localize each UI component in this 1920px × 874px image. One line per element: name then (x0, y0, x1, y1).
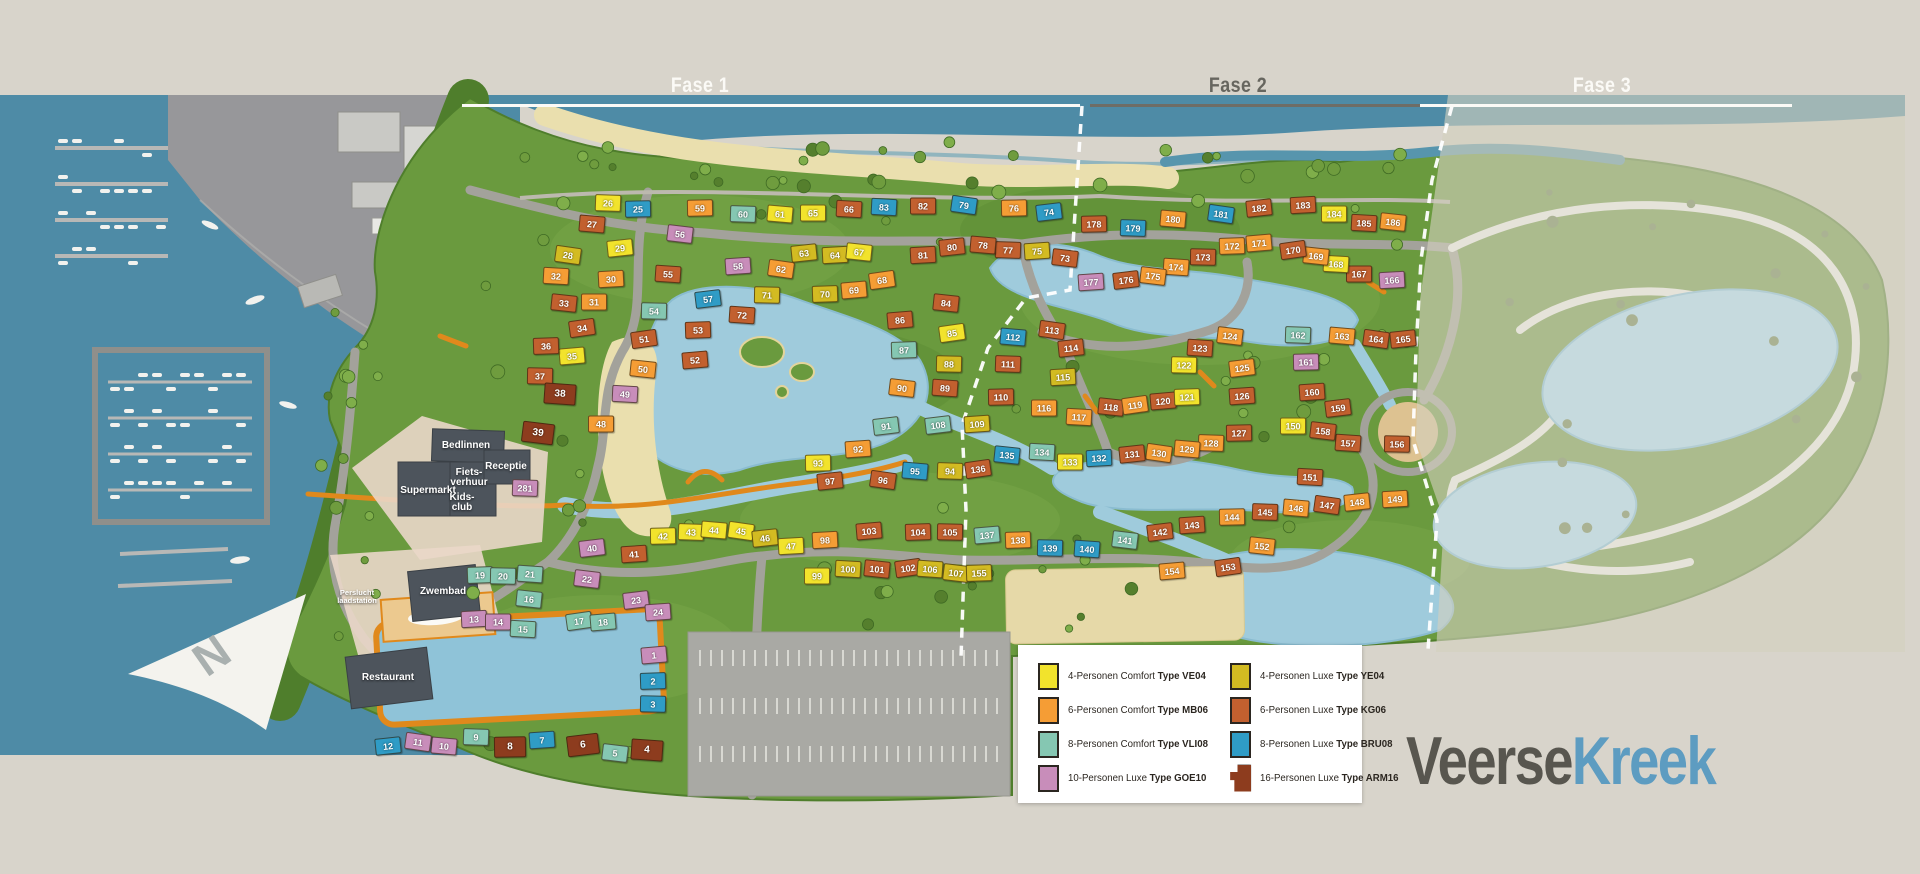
lot-marker-15: 15 (510, 620, 537, 638)
lot-marker-77: 77 (995, 241, 1022, 259)
lot-marker-134: 134 (1029, 443, 1056, 461)
lot-marker-54: 54 (641, 302, 667, 319)
lot-marker-46: 46 (751, 528, 779, 548)
lot-marker-11: 11 (404, 732, 432, 752)
lot-marker-89: 89 (931, 379, 958, 398)
lot-marker-33: 33 (550, 293, 578, 313)
lot-marker-78: 78 (969, 235, 996, 254)
lot-marker-172: 172 (1219, 237, 1246, 255)
lot-marker-162: 162 (1285, 326, 1312, 344)
lot-marker-70: 70 (812, 285, 839, 303)
lot-marker-60: 60 (730, 205, 757, 223)
lot-marker-56: 56 (666, 224, 694, 244)
lot-marker-65: 65 (800, 205, 826, 222)
lot-marker-50: 50 (629, 359, 657, 379)
lot-marker-95: 95 (901, 461, 928, 480)
lot-marker-79: 79 (950, 195, 978, 215)
lot-marker-94: 94 (937, 462, 964, 480)
lot-marker-64: 64 (822, 246, 849, 264)
lot-marker-153: 153 (1214, 557, 1242, 577)
lot-marker-123: 123 (1186, 339, 1213, 358)
lot-marker-176: 176 (1112, 270, 1140, 290)
lot-marker-149: 149 (1382, 490, 1409, 508)
lot-marker-58: 58 (724, 257, 751, 276)
lot-marker-73: 73 (1051, 248, 1079, 268)
lot-marker-30: 30 (598, 270, 625, 288)
legend-item-GOE10: 10-Personen Luxe Type GOE10 (1038, 763, 1220, 793)
lot-marker-103: 103 (855, 521, 882, 540)
lot-marker-40: 40 (578, 538, 606, 558)
lot-marker-175: 175 (1139, 266, 1167, 286)
legend-item-VE04: 4-Personen Comfort Type VE04 (1038, 661, 1220, 691)
park-map-page: N Fase 1 Fase 2 Fase 3 BedlinnenFiets- v… (0, 0, 1920, 874)
lot-marker-7: 7 (528, 731, 555, 750)
lot-marker-26: 26 (595, 194, 622, 212)
lot-marker-3: 3 (640, 695, 666, 712)
lot-marker-180: 180 (1159, 209, 1186, 228)
lot-marker-184: 184 (1321, 206, 1347, 223)
lot-marker-67: 67 (845, 242, 873, 262)
lot-marker-80: 80 (938, 237, 966, 257)
lot-marker-163: 163 (1328, 326, 1355, 345)
lot-marker-136: 136 (964, 459, 992, 479)
lot-marker-164: 164 (1362, 329, 1390, 349)
lot-marker-47: 47 (778, 537, 805, 555)
lot-marker-88: 88 (936, 355, 962, 372)
lot-marker-31: 31 (581, 294, 607, 311)
lot-marker-133: 133 (1057, 454, 1083, 471)
lot-marker-182: 182 (1245, 198, 1273, 218)
lot-marker-178: 178 (1081, 215, 1107, 232)
lot-marker-96: 96 (869, 470, 897, 490)
lot-marker-69: 69 (840, 280, 867, 299)
lot-marker-138: 138 (1005, 531, 1032, 549)
lot-marker-150: 150 (1280, 418, 1306, 435)
lot-marker-5: 5 (601, 743, 629, 763)
lot-marker-151: 151 (1297, 468, 1324, 486)
lot-marker-128: 128 (1198, 434, 1225, 452)
lot-marker-82: 82 (910, 198, 936, 215)
legend-swatch-VLI08 (1038, 731, 1059, 758)
lot-marker-166: 166 (1379, 271, 1406, 289)
lot-marker-132: 132 (1086, 449, 1113, 467)
legend-label: 16-Personen Luxe Type ARM16 (1260, 772, 1399, 784)
lot-marker-100: 100 (835, 560, 862, 578)
lot-marker-177: 177 (1077, 273, 1104, 292)
legend-swatch-MB06 (1038, 697, 1059, 724)
lot-marker-109: 109 (963, 415, 990, 434)
lot-marker-21: 21 (516, 565, 543, 584)
legend-swatch-KG06 (1230, 697, 1251, 724)
lot-marker-104: 104 (905, 523, 932, 541)
lot-marker-155: 155 (966, 564, 993, 582)
lot-marker-173: 173 (1190, 248, 1216, 265)
lot-marker-135: 135 (993, 445, 1021, 465)
lot-marker-48: 48 (588, 416, 614, 433)
lot-marker-112: 112 (999, 327, 1026, 346)
lot-marker-124: 124 (1216, 326, 1244, 346)
legend-item-VLI08: 8-Personen Comfort Type VLI08 (1038, 729, 1220, 759)
lot-marker-27: 27 (578, 214, 605, 233)
lot-marker-186: 186 (1379, 212, 1407, 232)
lot-marker-83: 83 (871, 198, 898, 216)
lot-marker-44: 44 (700, 520, 727, 539)
lot-marker-10: 10 (430, 736, 457, 755)
lot-marker-110: 110 (988, 388, 1014, 405)
lot-marker-49: 49 (612, 385, 639, 403)
lot-marker-13: 13 (461, 610, 488, 628)
lot-marker-116: 116 (1031, 400, 1057, 417)
lot-marker-42: 42 (650, 527, 676, 544)
lot-marker-146: 146 (1282, 498, 1309, 517)
lot-marker-36: 36 (533, 337, 560, 355)
lot-marker-97: 97 (816, 471, 844, 491)
legend-swatch-ARM16 (1230, 765, 1251, 792)
lot-marker-159: 159 (1324, 398, 1352, 418)
lot-marker-108: 108 (924, 415, 952, 435)
lot-marker-125: 125 (1228, 358, 1256, 378)
fase2-label: Fase 2 (1209, 74, 1267, 98)
lot-marker-68: 68 (868, 270, 896, 290)
lot-marker-141: 141 (1111, 530, 1139, 550)
lot-marker-34: 34 (568, 318, 596, 338)
lot-marker-22: 22 (573, 569, 601, 589)
lot-marker-92: 92 (844, 440, 871, 459)
lot-marker-81: 81 (910, 246, 937, 264)
lot-marker-121: 121 (1174, 388, 1201, 406)
lot-marker-2: 2 (640, 672, 667, 690)
lot-marker-85: 85 (938, 323, 966, 343)
lot-marker-25: 25 (625, 200, 651, 217)
legend-item-BRU08: 8-Personen Luxe Type BRU08 (1230, 729, 1411, 759)
lot-marker-120: 120 (1149, 391, 1176, 410)
lot-marker-63: 63 (790, 243, 818, 263)
lot-marker-160: 160 (1298, 383, 1325, 402)
lot-marker-281: 281 (512, 479, 539, 497)
lot-marker-119: 119 (1121, 395, 1149, 415)
legend-item-MB06: 6-Personen Comfort Type MB06 (1038, 695, 1220, 725)
lot-marker-105: 105 (937, 523, 963, 540)
lot-marker-140: 140 (1073, 540, 1100, 559)
lot-marker-41: 41 (620, 545, 647, 564)
lot-marker-75: 75 (1023, 242, 1050, 261)
park-logo: VeerseKreek (1406, 722, 1715, 800)
lot-marker-165: 165 (1389, 329, 1417, 349)
legend-item-YE04: 4-Personen Luxe Type YE04 (1230, 661, 1411, 691)
lot-marker-18: 18 (589, 612, 616, 631)
playground-strip (1005, 566, 1244, 644)
lot-marker-161: 161 (1293, 353, 1319, 370)
legend-label: 8-Personen Luxe Type BRU08 (1260, 738, 1392, 750)
lot-marker-32: 32 (543, 267, 570, 285)
lot-marker-59: 59 (687, 199, 713, 216)
lot-marker-139: 139 (1037, 539, 1063, 556)
lot-marker-28: 28 (554, 245, 582, 265)
lot-marker-152: 152 (1248, 536, 1276, 556)
lot-marker-24: 24 (644, 603, 671, 622)
fase2-line (1090, 104, 1420, 107)
lot-marker-111: 111 (995, 355, 1022, 373)
legend: 4-Personen Comfort Type VE046-Personen C… (1018, 645, 1362, 803)
legend-label: 6-Personen Luxe Type KG06 (1260, 704, 1386, 716)
lot-marker-93: 93 (805, 454, 831, 471)
fase3-label: Fase 3 (1573, 74, 1631, 98)
lot-marker-170: 170 (1279, 240, 1307, 260)
lot-marker-171: 171 (1245, 233, 1272, 252)
lot-marker-147: 147 (1313, 495, 1341, 515)
logo-part1: Veerse (1406, 723, 1572, 799)
lot-marker-98: 98 (812, 531, 839, 549)
lot-marker-142: 142 (1146, 522, 1174, 542)
legend-label: 4-Personen Luxe Type YE04 (1260, 670, 1384, 682)
lot-marker-154: 154 (1158, 561, 1185, 580)
lot-marker-90: 90 (888, 378, 916, 398)
legend-label: 10-Personen Luxe Type GOE10 (1068, 772, 1206, 784)
lot-marker-156: 156 (1384, 435, 1410, 452)
legend-label: 4-Personen Comfort Type VE04 (1068, 670, 1206, 682)
lot-marker-62: 62 (767, 259, 795, 279)
legend-label: 6-Personen Comfort Type MB06 (1068, 704, 1208, 716)
fase3-line (1420, 104, 1792, 107)
lot-marker-20: 20 (490, 567, 516, 584)
lot-marker-122: 122 (1171, 356, 1197, 373)
lot-marker-35: 35 (558, 346, 585, 365)
lot-marker-6: 6 (566, 733, 600, 758)
lot-marker-74: 74 (1035, 202, 1063, 222)
lot-marker-101: 101 (863, 559, 891, 579)
lot-marker-130: 130 (1145, 443, 1173, 463)
lot-marker-66: 66 (836, 200, 863, 218)
lot-marker-17: 17 (565, 611, 593, 631)
lot-marker-167: 167 (1346, 266, 1372, 283)
legend-swatch-BRU08 (1230, 731, 1251, 758)
parking-south (688, 632, 1010, 796)
lot-marker-55: 55 (654, 265, 681, 284)
lot-marker-131: 131 (1118, 444, 1146, 464)
lot-marker-148: 148 (1343, 492, 1371, 512)
lot-marker-114: 114 (1057, 338, 1085, 358)
lot-marker-9: 9 (463, 728, 490, 746)
lot-marker-129: 129 (1173, 439, 1200, 458)
lot-marker-4: 4 (630, 738, 663, 761)
lot-marker-53: 53 (685, 321, 712, 339)
lot-marker-185: 185 (1351, 214, 1378, 232)
lot-marker-99: 99 (804, 568, 830, 585)
lot-marker-91: 91 (872, 416, 900, 436)
lot-marker-145: 145 (1252, 503, 1279, 521)
lot-marker-183: 183 (1290, 196, 1317, 214)
lot-marker-179: 179 (1120, 219, 1147, 237)
logo-part2: Kreek (1572, 723, 1715, 799)
lot-marker-126: 126 (1228, 387, 1255, 406)
lot-marker-143: 143 (1178, 516, 1205, 535)
lot-marker-113: 113 (1038, 320, 1066, 340)
lot-marker-106: 106 (916, 560, 943, 579)
lot-marker-14: 14 (485, 614, 511, 631)
lot-marker-38: 38 (543, 382, 576, 405)
fase1-line (462, 104, 1080, 107)
lot-marker-12: 12 (374, 736, 402, 756)
lot-marker-16: 16 (515, 589, 543, 609)
legend-swatch-GOE10 (1038, 765, 1059, 792)
lot-marker-8: 8 (494, 736, 526, 758)
fase1-label: Fase 1 (671, 74, 729, 98)
lot-marker-137: 137 (973, 525, 1000, 544)
lot-marker-115: 115 (1050, 368, 1077, 386)
lot-marker-127: 127 (1226, 424, 1252, 441)
lot-marker-72: 72 (728, 306, 755, 325)
lot-marker-61: 61 (766, 204, 793, 223)
lot-marker-158: 158 (1309, 421, 1337, 441)
lot-marker-181: 181 (1207, 204, 1235, 224)
lot-marker-84: 84 (932, 293, 960, 313)
lot-marker-29: 29 (606, 238, 634, 258)
lot-marker-174: 174 (1162, 258, 1189, 277)
lot-marker-157: 157 (1334, 434, 1361, 453)
lot-marker-57: 57 (694, 289, 722, 309)
lot-marker-51: 51 (630, 329, 658, 349)
legend-label: 8-Personen Comfort Type VLI08 (1068, 738, 1208, 750)
lot-marker-76: 76 (1001, 199, 1027, 216)
legend-swatch-VE04 (1038, 663, 1059, 690)
legend-item-ARM16: 16-Personen Luxe Type ARM16 (1230, 763, 1411, 793)
lot-marker-117: 117 (1066, 408, 1093, 426)
lot-marker-71: 71 (754, 286, 780, 303)
legend-swatch-YE04 (1230, 663, 1251, 690)
lot-marker-52: 52 (681, 350, 708, 369)
legend-item-KG06: 6-Personen Luxe Type KG06 (1230, 695, 1411, 725)
lot-marker-144: 144 (1219, 508, 1245, 525)
lot-marker-1: 1 (640, 645, 667, 664)
lot-marker-86: 86 (886, 310, 913, 329)
lot-marker-39: 39 (521, 421, 555, 446)
lot-marker-87: 87 (891, 341, 918, 359)
